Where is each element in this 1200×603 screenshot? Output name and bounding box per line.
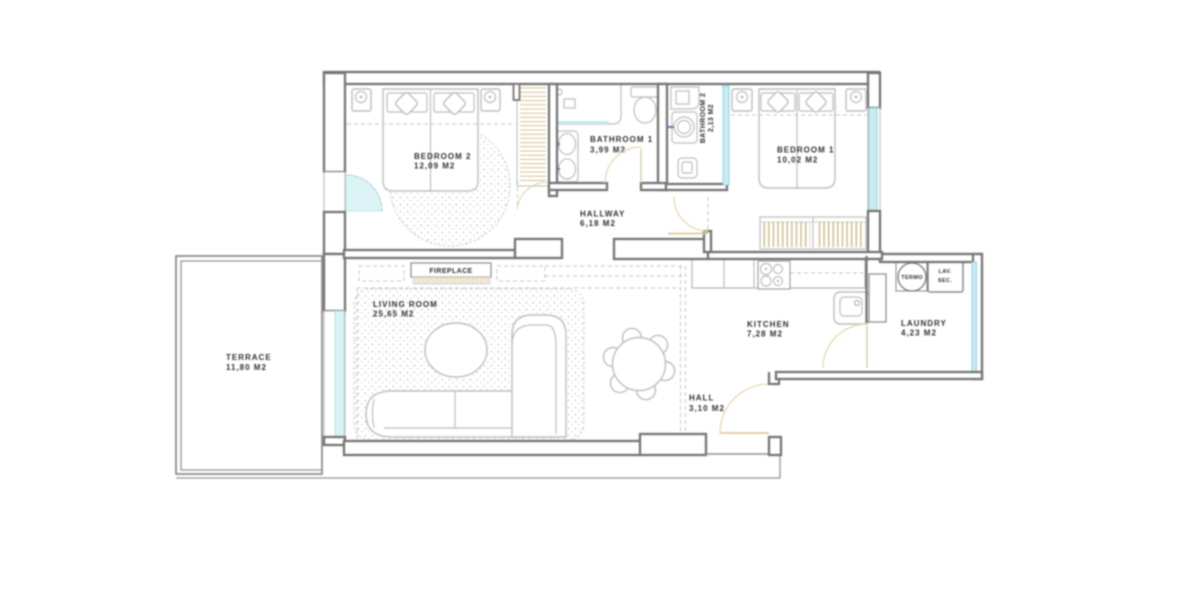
svg-text:LAUNDRY: LAUNDRY [901,319,947,328]
svg-text:BATHROOM 2: BATHROOM 2 [700,93,707,144]
svg-text:TERMO: TERMO [901,275,923,281]
svg-text:HALLWAY: HALLWAY [580,210,625,219]
svg-text:LAV.: LAV. [938,269,951,275]
svg-text:BEDROOM 2: BEDROOM 2 [414,152,471,161]
svg-text:HALL: HALL [689,394,714,403]
svg-text:10,02 M2: 10,02 M2 [777,156,818,165]
svg-text:4,23 M2: 4,23 M2 [901,329,937,338]
svg-text:BEDROOM 1: BEDROOM 1 [777,146,834,155]
svg-text:LIVING ROOM: LIVING ROOM [373,300,438,309]
svg-text:BATHROOM 1: BATHROOM 1 [590,135,653,144]
svg-text:SEC.: SEC. [938,278,952,284]
svg-text:2,13 M2: 2,13 M2 [708,104,715,132]
svg-text:12,09 M2: 12,09 M2 [414,162,455,171]
svg-text:7,28 M2: 7,28 M2 [747,330,783,339]
svg-text:11,80 M2: 11,80 M2 [226,363,267,372]
svg-text:6,18 M2: 6,18 M2 [580,219,616,228]
svg-text:TERRACE: TERRACE [226,353,272,362]
svg-text:KITCHEN: KITCHEN [747,320,790,329]
svg-text:25,65 M2: 25,65 M2 [373,310,414,319]
svg-text:FIREPLACE: FIREPLACE [429,268,472,275]
svg-text:3,10 M2: 3,10 M2 [689,404,725,413]
